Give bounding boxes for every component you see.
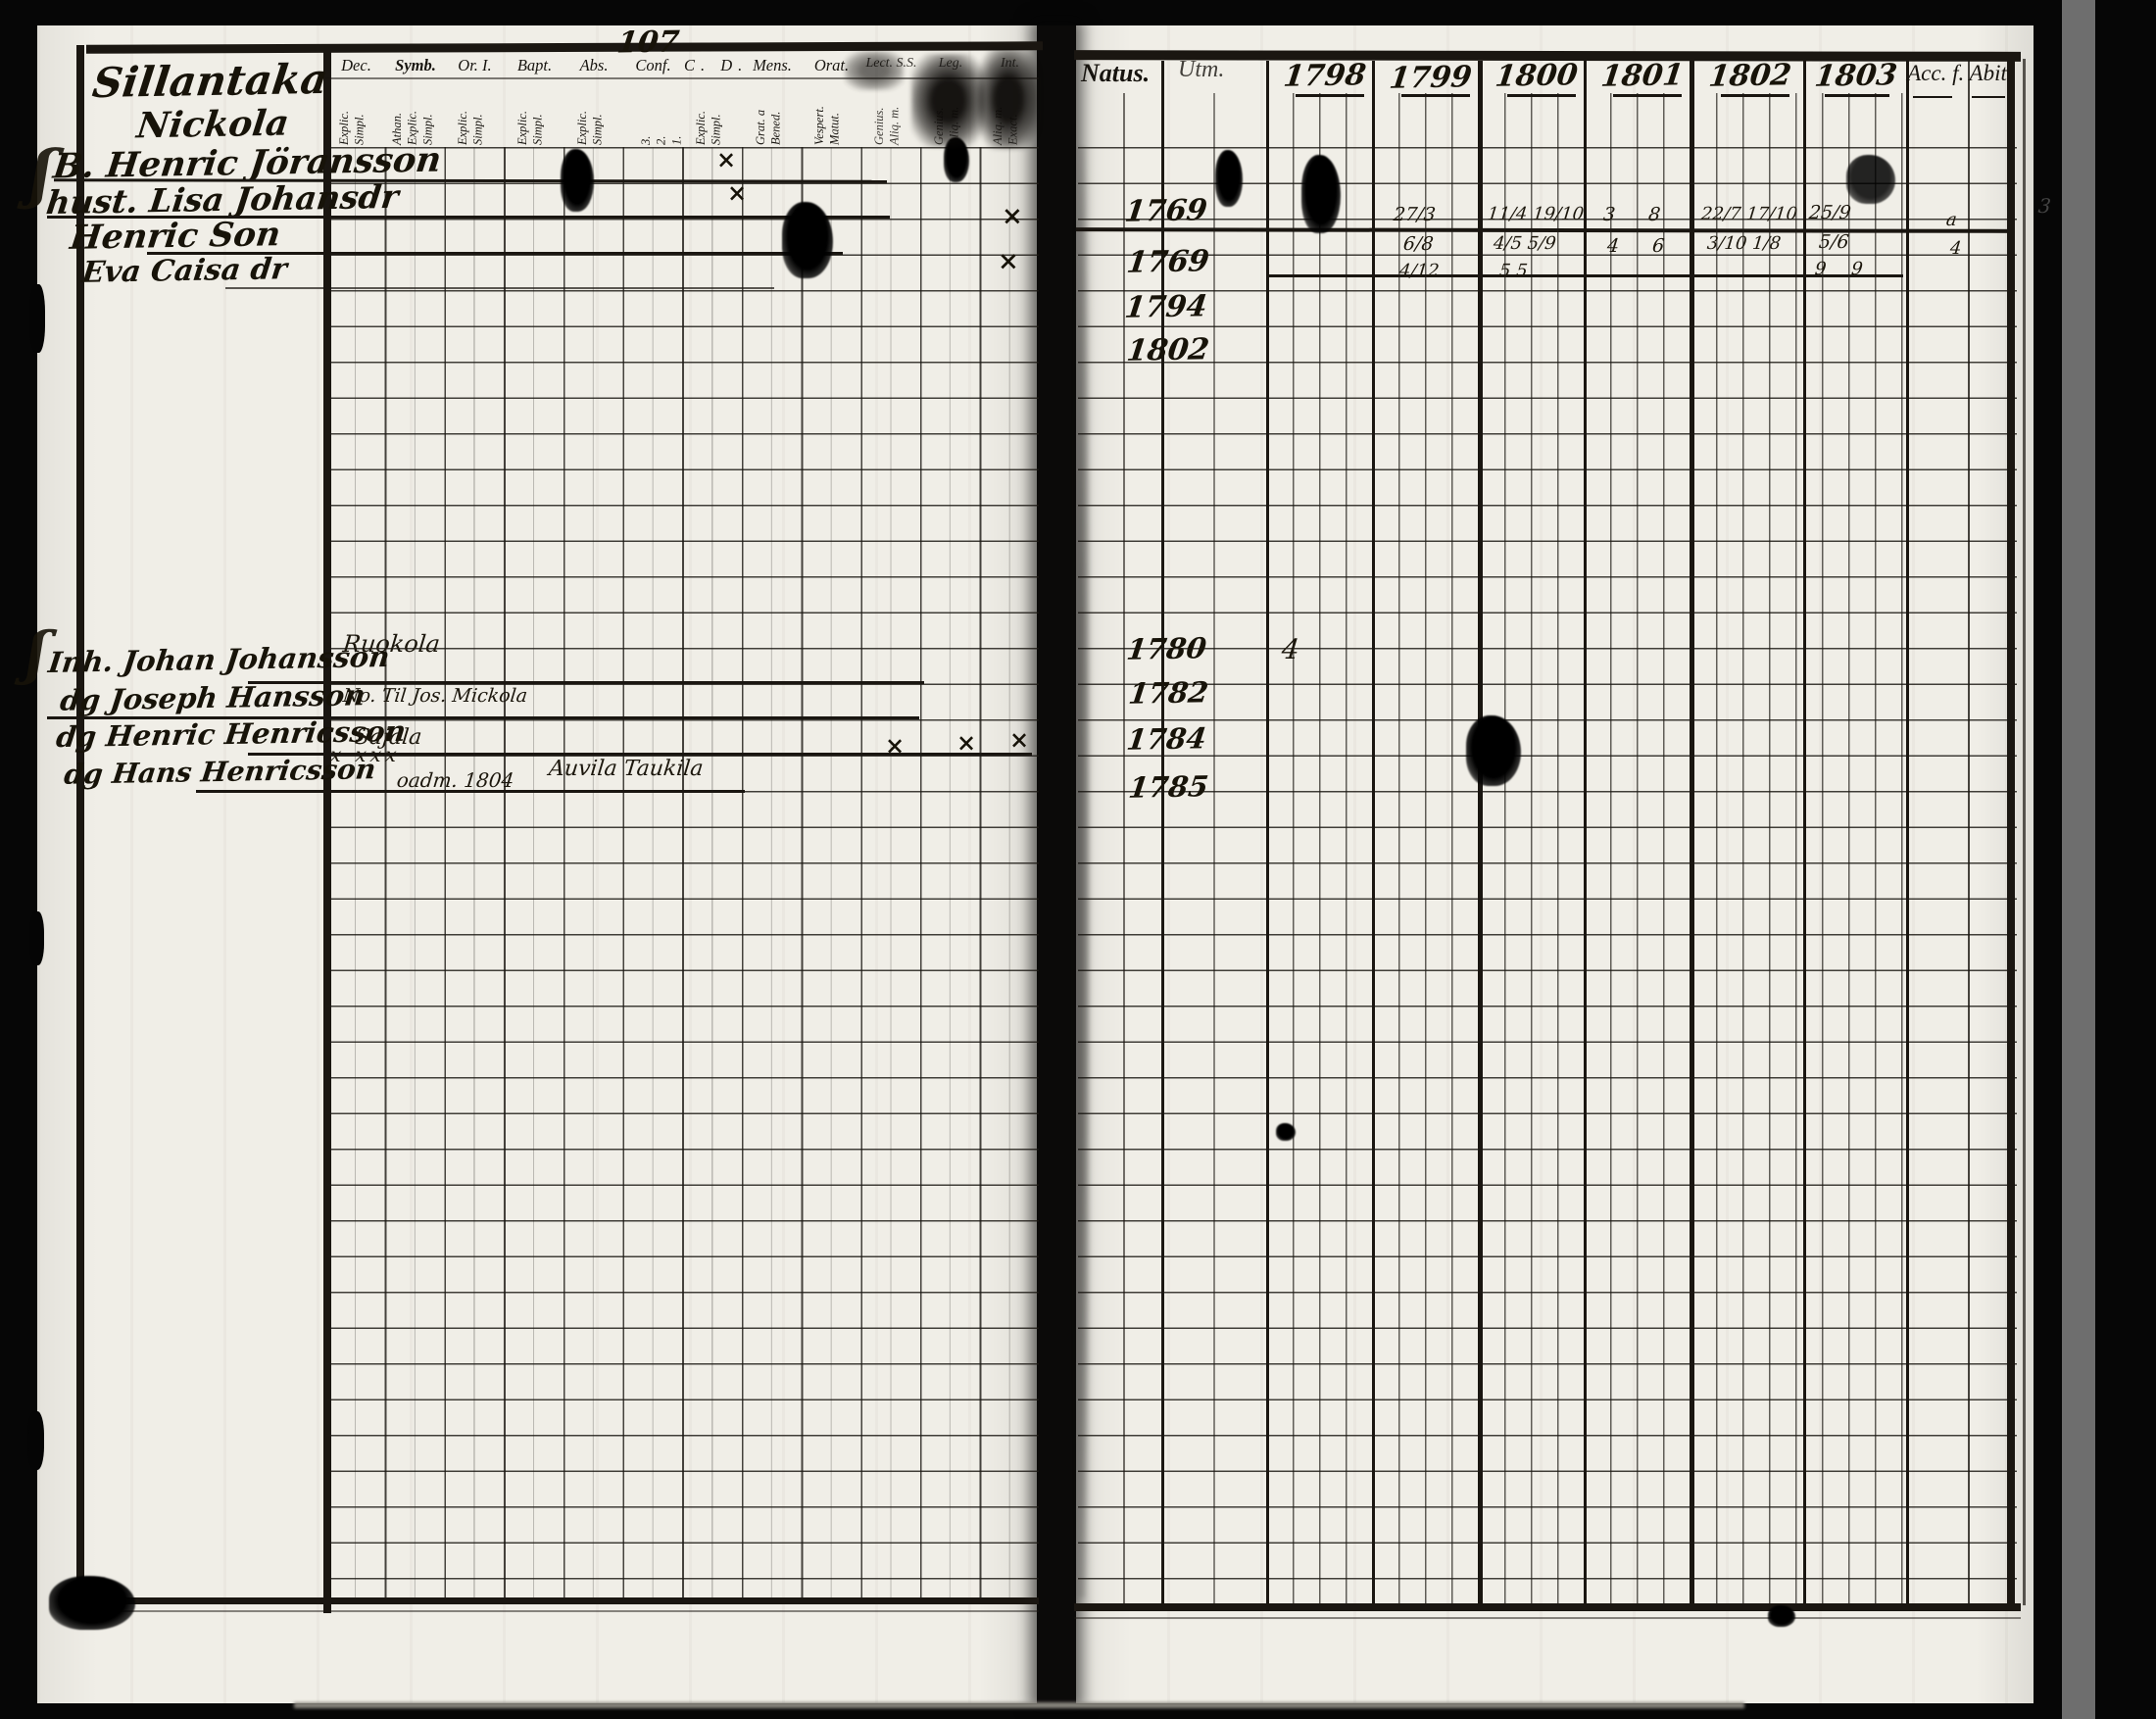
- column-header: Symb.: [387, 56, 444, 75]
- edge-blemish: [27, 1411, 44, 1470]
- year-underline: [1721, 94, 1789, 97]
- pen-cross-mark: ×: [727, 178, 747, 207]
- scanned-parish-register: Dec. Symb. Or. I. Bapt. Abs. Conf. C. D.…: [0, 0, 2156, 1719]
- ink-blot: [1466, 715, 1521, 786]
- communion-mark: 11/4 19/10: [1487, 204, 1585, 224]
- ink-blot: [1276, 1123, 1296, 1141]
- column-subheader: Genius. Aliq. m.: [872, 82, 903, 145]
- acc-mark: 4: [1949, 238, 1963, 259]
- year-underline: [1507, 94, 1576, 97]
- year-column-rule: [1478, 61, 1483, 1603]
- communion-mark: 4/12: [1398, 261, 1441, 281]
- utm-header: Utm.: [1178, 57, 1224, 83]
- natus-value: 1794: [1123, 289, 1209, 324]
- year-column-rule: [1690, 61, 1694, 1603]
- column-subheader: Explic. Simpl.: [456, 82, 486, 145]
- ink-blot: [1846, 155, 1895, 204]
- entry-name: Inh. Johan Johansson: [47, 640, 392, 679]
- pen-cross-mark: ×: [956, 728, 976, 757]
- year-label: 1803: [1813, 58, 1895, 93]
- communion-mark: 3 8: [1602, 204, 1676, 225]
- utm-column-rule: [1213, 93, 1215, 1603]
- column-header: Or. I.: [446, 56, 504, 75]
- column-subheader: Explic. Simpl.: [575, 82, 606, 145]
- edge-blemish: [29, 911, 44, 965]
- ink-row-line: [147, 252, 843, 255]
- gutter-bleed: [1074, 147, 1090, 1597]
- communion-mark: 4/5 5/9: [1493, 233, 1557, 254]
- year-underline: [1296, 94, 1364, 97]
- year-column-rule: [1372, 61, 1375, 1603]
- year-column-rule: [1584, 61, 1587, 1603]
- year-underline: [1613, 94, 1682, 97]
- table-bottom-rule-left-2: [83, 1610, 1039, 1612]
- entry-name: dg Joseph Hansson: [59, 678, 367, 716]
- entry-annotation: oadm. 1804: [396, 768, 515, 792]
- column-subheader: Explic. Simpl.: [515, 82, 546, 145]
- edge-pen-mark: 3: [2037, 194, 2052, 218]
- ink-row-line: [248, 753, 1032, 756]
- page-number: 107: [615, 25, 681, 60]
- communion-mark: 4: [1280, 633, 1300, 665]
- communion-mark: 5/6: [1818, 231, 1850, 253]
- table-bottom-rule-right-2: [1074, 1617, 2021, 1619]
- acc-column-rule: [1968, 61, 1970, 1603]
- pen-cross-mark: ×: [716, 145, 736, 173]
- column-subheader: Explic. Simpl.: [694, 82, 724, 145]
- left-grid: [325, 147, 1039, 1599]
- ink-row-line: [196, 790, 745, 793]
- ink-blot: [49, 1576, 135, 1630]
- acc-abit-header: Acc. f. Abit: [1899, 61, 2015, 86]
- column-header: Dec.: [327, 56, 385, 75]
- year-label: 1801: [1599, 58, 1682, 93]
- table-right-edge-rule: [2007, 55, 2015, 1609]
- pen-cross-mark: ×: [998, 247, 1019, 276]
- communion-mark: 4 6: [1606, 235, 1680, 257]
- year-column-rule: [1803, 61, 1806, 1603]
- natus-value: 1769: [1123, 193, 1209, 228]
- column-subheader: Vespert. Matut.: [812, 82, 843, 145]
- table-right-edge-rule-2: [2023, 59, 2026, 1605]
- entry-annotation: Ruokola: [342, 630, 442, 658]
- farm-subtitle: Nickola: [134, 103, 291, 147]
- ink-blot: [1215, 150, 1243, 207]
- ink-smudge: [845, 51, 904, 90]
- ink-row-line: [47, 216, 890, 219]
- ink-row-line: [47, 716, 919, 719]
- year-column-rule: [1906, 61, 1909, 1603]
- year-underline: [1825, 94, 1889, 97]
- column-header: Abs.: [565, 56, 622, 75]
- ink-blot: [782, 202, 833, 278]
- entry-annotation: No. Til Jos. Mickola: [342, 685, 528, 707]
- edge-blemish: [29, 284, 45, 353]
- acc-underline: [1972, 96, 2005, 98]
- communion-mark: 9 9: [1814, 259, 1874, 279]
- year-label: 1800: [1494, 58, 1576, 93]
- column-subheader: Grat. a Bened.: [754, 82, 784, 145]
- ink-row-line: [225, 287, 774, 289]
- column-header: C. D.: [684, 56, 742, 75]
- page-gutter: [1037, 25, 1076, 1703]
- ink-blot: [1768, 1605, 1795, 1627]
- column-subheader: Athan. Explic. Simpl.: [390, 82, 436, 145]
- acc-mark: a: [1945, 210, 1958, 230]
- year-column-rule: [1266, 61, 1269, 1603]
- ink-smudge: [911, 54, 985, 147]
- year-label: 1799: [1388, 60, 1470, 95]
- table-bottom-rule-left: [83, 1597, 1039, 1604]
- scanner-edge-strip: [2062, 0, 2095, 1719]
- ink-row-line: [248, 681, 924, 684]
- natus-header: Natus.: [1081, 59, 1150, 88]
- entry-annotation: Auvila Taukila: [548, 757, 705, 781]
- acc-underline: [1913, 96, 1952, 98]
- ink-blot: [1301, 155, 1341, 233]
- natus-value: 1785: [1127, 769, 1210, 804]
- natus-value: 1780: [1125, 631, 1208, 665]
- column-header: Mens.: [744, 56, 801, 75]
- table-bottom-rule-right: [1074, 1603, 2021, 1611]
- communion-mark: 5 5: [1498, 261, 1529, 281]
- communion-mark: 3/10 1/8: [1706, 233, 1782, 254]
- natus-value: 1769: [1125, 244, 1211, 279]
- communion-mark: 25/9: [1808, 202, 1852, 223]
- bottom-page-curl: [294, 1702, 1744, 1708]
- ink-smudge: [978, 49, 1039, 149]
- year-label: 1798: [1282, 58, 1364, 93]
- pen-cross-mark: ×: [1009, 725, 1029, 754]
- natus-value: 1782: [1127, 675, 1210, 710]
- year-label: 1802: [1707, 58, 1789, 93]
- pen-cross-mark: ×: [1002, 202, 1023, 231]
- ink-blot: [561, 149, 594, 212]
- communion-mark: 22/7 17/10: [1700, 204, 1798, 224]
- ink-row-line: [1266, 274, 1903, 277]
- pen-cross-mark: ×: [885, 731, 905, 760]
- entry-name: Eva Caisa dr: [80, 252, 289, 290]
- communion-mark: 6/8: [1402, 233, 1435, 255]
- column-subheader: Explic. Simpl.: [337, 82, 367, 145]
- farm-title: Sillantaka: [90, 55, 330, 107]
- natus-value: 1802: [1125, 332, 1211, 368]
- column-header: Bapt.: [506, 56, 563, 75]
- communion-mark: 27/3: [1393, 204, 1437, 225]
- natus-value: 1784: [1125, 721, 1208, 756]
- column-subheader: 3. 2. 1.: [639, 82, 685, 145]
